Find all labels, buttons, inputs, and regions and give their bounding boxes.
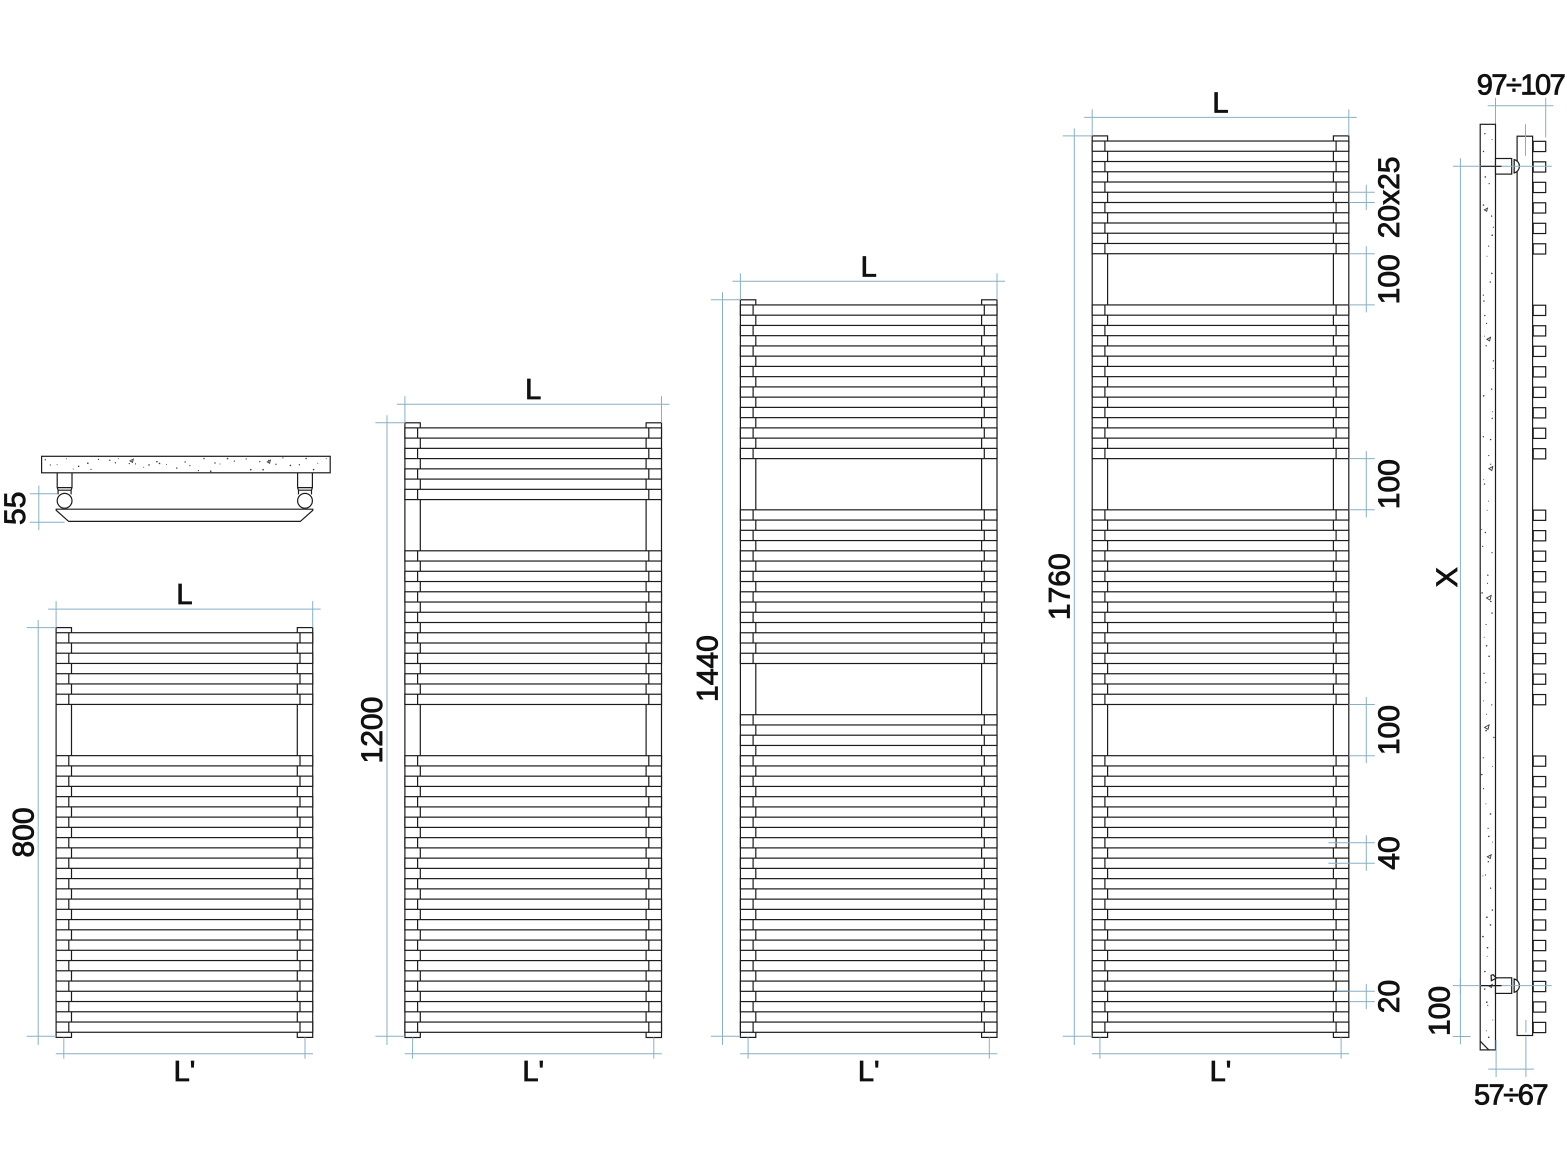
svg-text:L: L: [861, 251, 877, 283]
svg-text:1760: 1760: [1043, 553, 1076, 620]
svg-text:L': L': [1210, 1056, 1232, 1088]
svg-text:L: L: [1212, 87, 1228, 119]
svg-text:L: L: [176, 579, 192, 611]
svg-text:L': L': [174, 1056, 196, 1088]
svg-text:40: 40: [1373, 836, 1406, 869]
svg-text:57÷67: 57÷67: [1474, 1080, 1547, 1112]
svg-text:20x25: 20x25: [1373, 157, 1406, 239]
svg-text:L: L: [525, 374, 541, 406]
svg-text:800: 800: [7, 807, 40, 857]
svg-text:100: 100: [1373, 459, 1406, 509]
svg-text:L': L': [522, 1056, 544, 1088]
svg-text:100: 100: [1373, 254, 1406, 304]
svg-text:55: 55: [0, 492, 32, 525]
svg-text:X: X: [1431, 567, 1464, 587]
svg-text:20: 20: [1373, 980, 1406, 1013]
svg-text:1440: 1440: [692, 635, 725, 702]
svg-text:97÷107: 97÷107: [1477, 70, 1565, 102]
svg-text:L': L': [858, 1056, 880, 1088]
svg-text:100: 100: [1424, 986, 1457, 1036]
svg-text:1200: 1200: [356, 697, 389, 764]
svg-text:100: 100: [1373, 705, 1406, 755]
